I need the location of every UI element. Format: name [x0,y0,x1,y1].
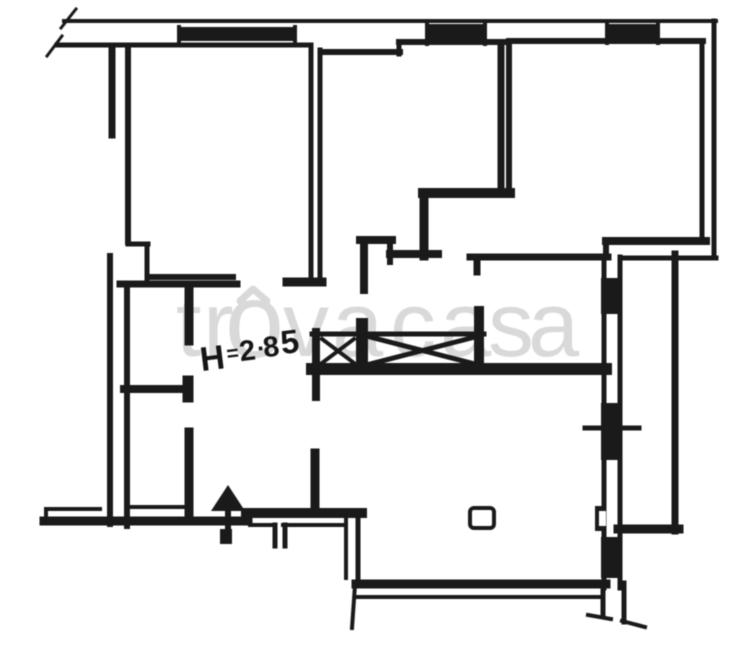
svg-text:c: c [390,274,436,376]
svg-text:H: H [198,338,227,379]
svg-text:a: a [528,274,580,376]
